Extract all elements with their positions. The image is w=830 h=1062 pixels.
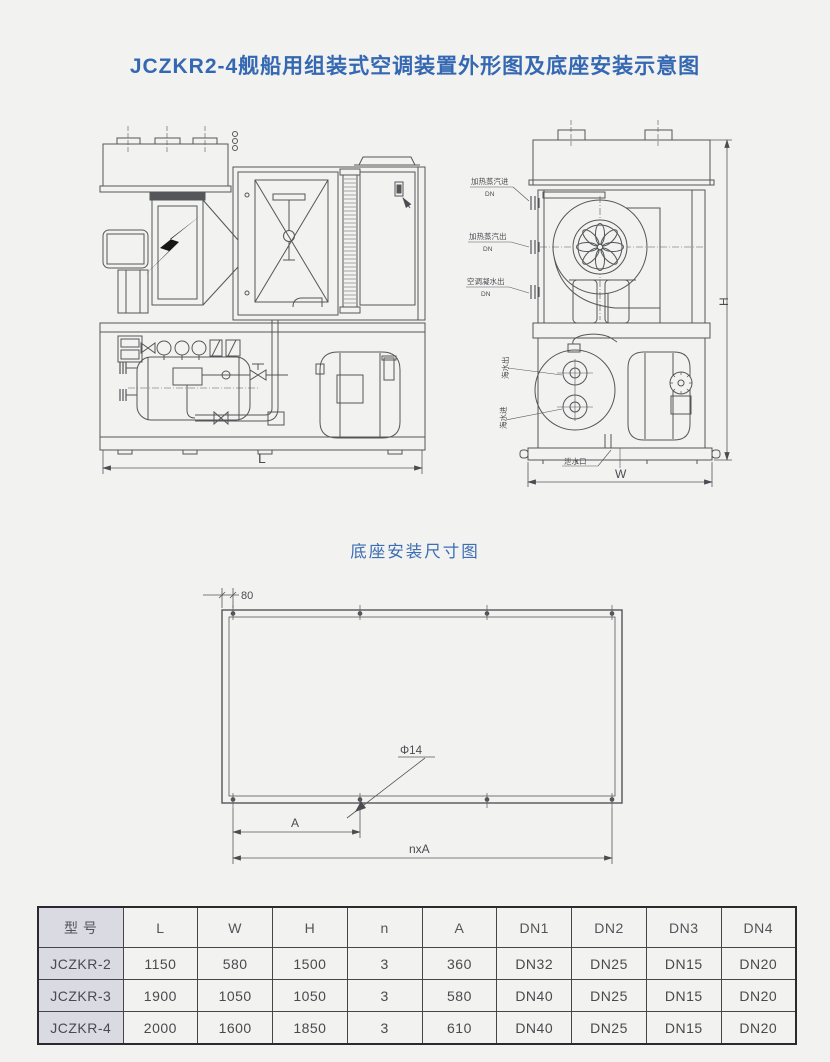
dim-h-label: H xyxy=(717,297,731,306)
table-cell: DN20 xyxy=(721,980,796,1012)
table-cell: 580 xyxy=(422,980,497,1012)
col-header-n: n xyxy=(347,907,422,948)
table-cell: 1150 xyxy=(123,948,198,980)
steam-in-dn: DN xyxy=(485,191,495,198)
table-cell: DN15 xyxy=(646,980,721,1012)
table-cell: DN15 xyxy=(646,948,721,980)
table-cell: 3 xyxy=(347,980,422,1012)
table-cell: 3 xyxy=(347,1012,422,1045)
table-row: JCZKR-3 1900 1050 1050 3 580 DN40 DN25 D… xyxy=(38,980,796,1012)
bolt-holes xyxy=(231,605,614,808)
table-cell: DN15 xyxy=(646,1012,721,1045)
col-header-a: A xyxy=(422,907,497,948)
mid-band xyxy=(533,323,710,338)
table-cell-model: JCZKR-4 xyxy=(38,1012,123,1045)
table-cell-model: JCZKR-3 xyxy=(38,980,123,1012)
heater-coil xyxy=(340,169,360,313)
table-cell: DN40 xyxy=(497,1012,572,1045)
table-cell: 1500 xyxy=(273,948,348,980)
side-machinery-section xyxy=(535,334,705,448)
access-door xyxy=(354,157,420,320)
dim-l-label: L xyxy=(258,450,266,466)
dim-pitch-label: A xyxy=(291,816,299,830)
air-handling-section xyxy=(233,167,425,320)
steam-in-label: 加热蒸汽进 xyxy=(471,176,509,186)
table-cell: DN40 xyxy=(497,980,572,1012)
lightning-bolt-icon xyxy=(145,216,200,275)
spec-table: 型 号 L W H n A DN1 DN2 DN3 DN4 JCZKR-2 11… xyxy=(37,906,797,1045)
side-base xyxy=(520,448,720,468)
dim-total-label: nxA xyxy=(409,842,430,856)
condensate-label: 空调凝水出 xyxy=(467,276,505,286)
table-cell: DN32 xyxy=(497,948,572,980)
top-cap xyxy=(529,120,714,185)
col-header-dn1: DN1 xyxy=(497,907,572,948)
table-cell: DN25 xyxy=(572,948,647,980)
table-cell: DN20 xyxy=(721,948,796,980)
drain-label: 泄水口 xyxy=(564,456,587,466)
dim-edge-label: 80 xyxy=(241,590,253,602)
col-header-model: 型 号 xyxy=(38,907,123,948)
table-header-row: 型 号 L W H n A DN1 DN2 DN3 DN4 xyxy=(38,907,796,948)
table-cell: 1050 xyxy=(198,980,273,1012)
table-cell: 1600 xyxy=(198,1012,273,1045)
sea-water-out-label: 海水出 xyxy=(500,357,510,380)
table-cell: 580 xyxy=(198,948,273,980)
col-header-h: H xyxy=(273,907,348,948)
fan-section xyxy=(538,190,705,323)
table-cell: DN25 xyxy=(572,980,647,1012)
side-view-drawing: 加热蒸汽进 DN 加热蒸汽出 DN 空调凝水出 DN 海水出 海水进 泄水口 W… xyxy=(465,112,740,497)
steam-out-dn: DN xyxy=(483,246,493,253)
dimension-edge-80 xyxy=(203,588,239,608)
table-cell: DN20 xyxy=(721,1012,796,1045)
col-header-dn4: DN4 xyxy=(721,907,796,948)
front-view-drawing: L xyxy=(88,112,440,484)
steam-out-label: 加热蒸汽出 xyxy=(469,231,507,241)
table-cell-model: JCZKR-2 xyxy=(38,948,123,980)
base-plate xyxy=(222,610,622,803)
table-cell: 610 xyxy=(422,1012,497,1045)
machinery-section xyxy=(100,320,425,438)
table-cell: 3 xyxy=(347,948,422,980)
condensate-dn: DN xyxy=(481,291,491,298)
col-header-w: W xyxy=(198,907,273,948)
table-cell: DN25 xyxy=(572,1012,647,1045)
dim-hole-label: Φ14 xyxy=(400,745,423,757)
col-header-l: L xyxy=(123,907,198,948)
table-cell: 1850 xyxy=(273,1012,348,1045)
base-plan-drawing: 80 Φ14 A nxA xyxy=(195,572,645,872)
table-cell: 2000 xyxy=(123,1012,198,1045)
plenum-box xyxy=(100,126,238,192)
table-cell: 1050 xyxy=(273,980,348,1012)
page-title: JCZKR2-4舰船用组装式空调装置外形图及底座安装示意图 xyxy=(0,50,830,80)
table-row: JCZKR-4 2000 1600 1850 3 610 DN40 DN25 D… xyxy=(38,1012,796,1045)
table-row: JCZKR-2 1150 580 1500 3 360 DN32 DN25 DN… xyxy=(38,948,796,980)
table-cell: 1900 xyxy=(123,980,198,1012)
table-cell: 360 xyxy=(422,948,497,980)
col-header-dn3: DN3 xyxy=(646,907,721,948)
sea-water-in-label: 海水进 xyxy=(498,406,508,429)
col-header-dn2: DN2 xyxy=(572,907,647,948)
filter-section xyxy=(103,192,238,313)
dim-w-label: W xyxy=(615,467,627,481)
base-plan-title: 底座安装尺寸图 xyxy=(0,538,830,562)
